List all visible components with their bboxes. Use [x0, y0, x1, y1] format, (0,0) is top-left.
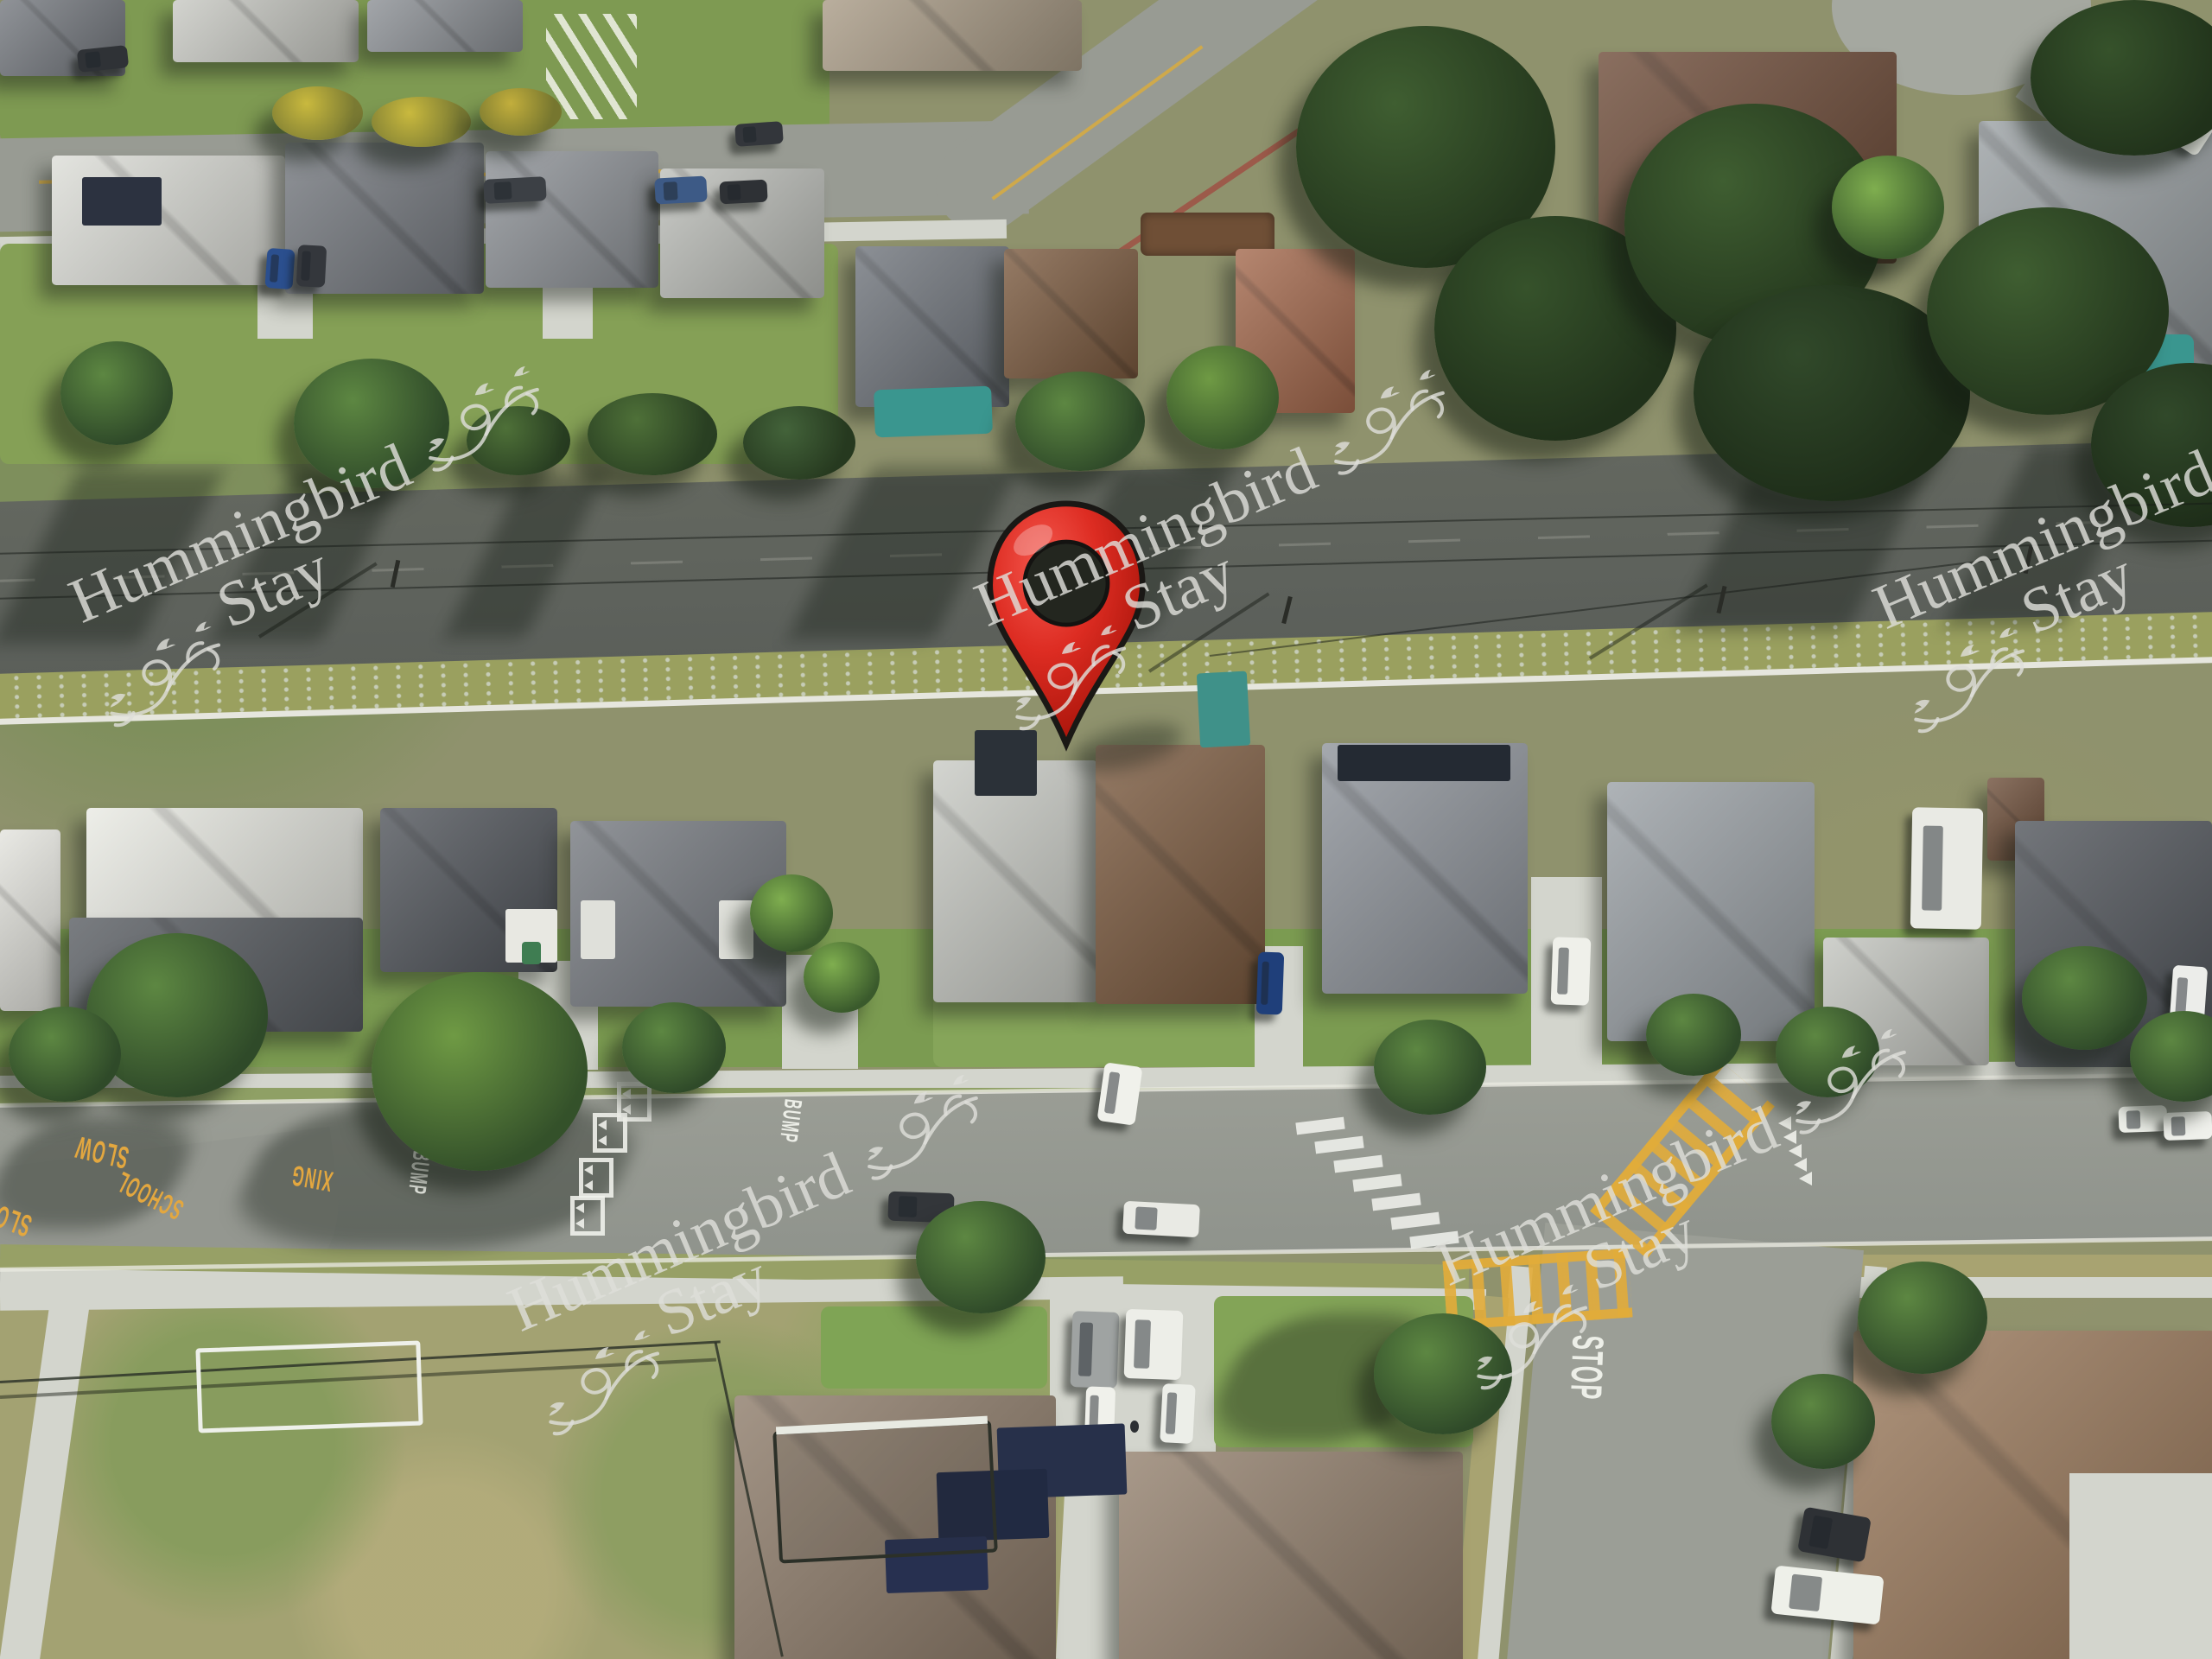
- driveway: [2069, 1473, 2212, 1659]
- car: [1551, 937, 1592, 1005]
- fence-shadow-stripes: [546, 14, 637, 119]
- house-roof: [1119, 1452, 1463, 1659]
- house-roof: [0, 829, 60, 1011]
- flowering-bush: [372, 97, 471, 147]
- pickup-truck: [483, 176, 546, 204]
- van: [1070, 1311, 1119, 1389]
- soccer-goal: [195, 1340, 423, 1433]
- person: [1130, 1421, 1139, 1433]
- car: [2163, 1111, 2212, 1141]
- batting-cage: [772, 1420, 998, 1563]
- tree: [916, 1201, 1046, 1313]
- car: [1160, 1383, 1196, 1444]
- tree: [1771, 1374, 1875, 1469]
- flowering-bush: [272, 86, 363, 140]
- house-roof: [823, 0, 1082, 71]
- palm-tree: [804, 942, 880, 1013]
- car: [1256, 951, 1284, 1014]
- house-roof: [173, 0, 359, 62]
- street-tree-canopy: [372, 972, 588, 1171]
- tree: [1858, 1262, 1987, 1374]
- car: [296, 245, 327, 288]
- house-roof: [367, 0, 523, 52]
- palm-tree: [750, 874, 833, 952]
- tree: [1374, 1020, 1486, 1115]
- solar-panels: [82, 177, 162, 226]
- front-lawn: [933, 994, 1262, 1067]
- solar-panels: [1338, 745, 1510, 781]
- tree: [1646, 994, 1741, 1076]
- speed-hump-marking: [579, 1158, 613, 1198]
- tree: [60, 341, 173, 445]
- speed-hump-marking: [570, 1196, 605, 1236]
- car: [1096, 1062, 1142, 1125]
- aerial-neighborhood-photo: SLOW SLOW SCHOOL XING BUMP BUMP STOP: [0, 0, 2212, 1659]
- tree: [2022, 946, 2147, 1050]
- front-lawn: [821, 1306, 1047, 1389]
- car: [2118, 1105, 2167, 1133]
- white-trim: [719, 900, 753, 959]
- flowering-bush: [480, 88, 562, 136]
- road-marking-bump: BUMP: [775, 1097, 805, 1144]
- palm-tree: [1832, 156, 1944, 259]
- hedge: [743, 406, 855, 480]
- house-roof: [1096, 745, 1265, 1004]
- pickup-truck: [1124, 1309, 1184, 1380]
- car: [264, 248, 295, 289]
- road-marking-xing: XING: [289, 1160, 334, 1196]
- trash-bin: [522, 942, 541, 964]
- white-trim: [581, 900, 615, 959]
- tree: [1015, 372, 1145, 471]
- car: [719, 180, 767, 205]
- house-roof: [486, 151, 658, 288]
- house-roof: [855, 246, 1009, 407]
- tree: [1166, 346, 1279, 449]
- pickup-truck: [1122, 1201, 1200, 1238]
- teal-patio-cover: [1197, 671, 1250, 748]
- van: [654, 175, 707, 204]
- swimming-pool: [874, 386, 993, 438]
- rv-motorhome: [1910, 807, 1983, 929]
- tree: [622, 1002, 726, 1093]
- house-roof: [1004, 249, 1138, 378]
- pinned-house-roof: [933, 760, 1097, 1002]
- speed-hump-marking: [593, 1113, 627, 1153]
- hedge: [588, 393, 717, 475]
- car: [734, 121, 784, 147]
- tree: [9, 1007, 121, 1102]
